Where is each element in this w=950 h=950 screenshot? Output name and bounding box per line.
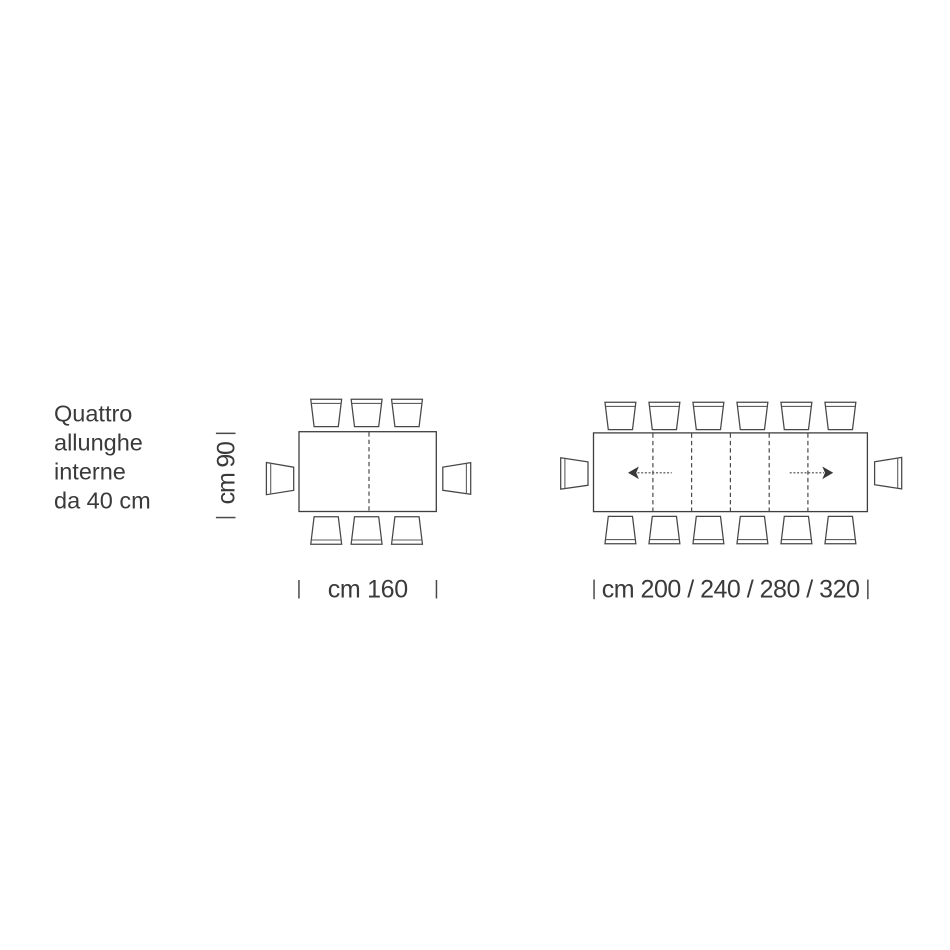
svg-text:allunghe: allunghe [54, 430, 143, 456]
svg-text:cm 160: cm 160 [328, 576, 408, 604]
svg-text:Quattro: Quattro [54, 401, 132, 427]
svg-text:interne: interne [54, 459, 126, 485]
svg-text:cm 200 / 240 / 280 / 320: cm 200 / 240 / 280 / 320 [602, 576, 860, 604]
svg-text:cm 90: cm 90 [212, 442, 240, 504]
svg-text:da 40 cm: da 40 cm [54, 488, 151, 514]
